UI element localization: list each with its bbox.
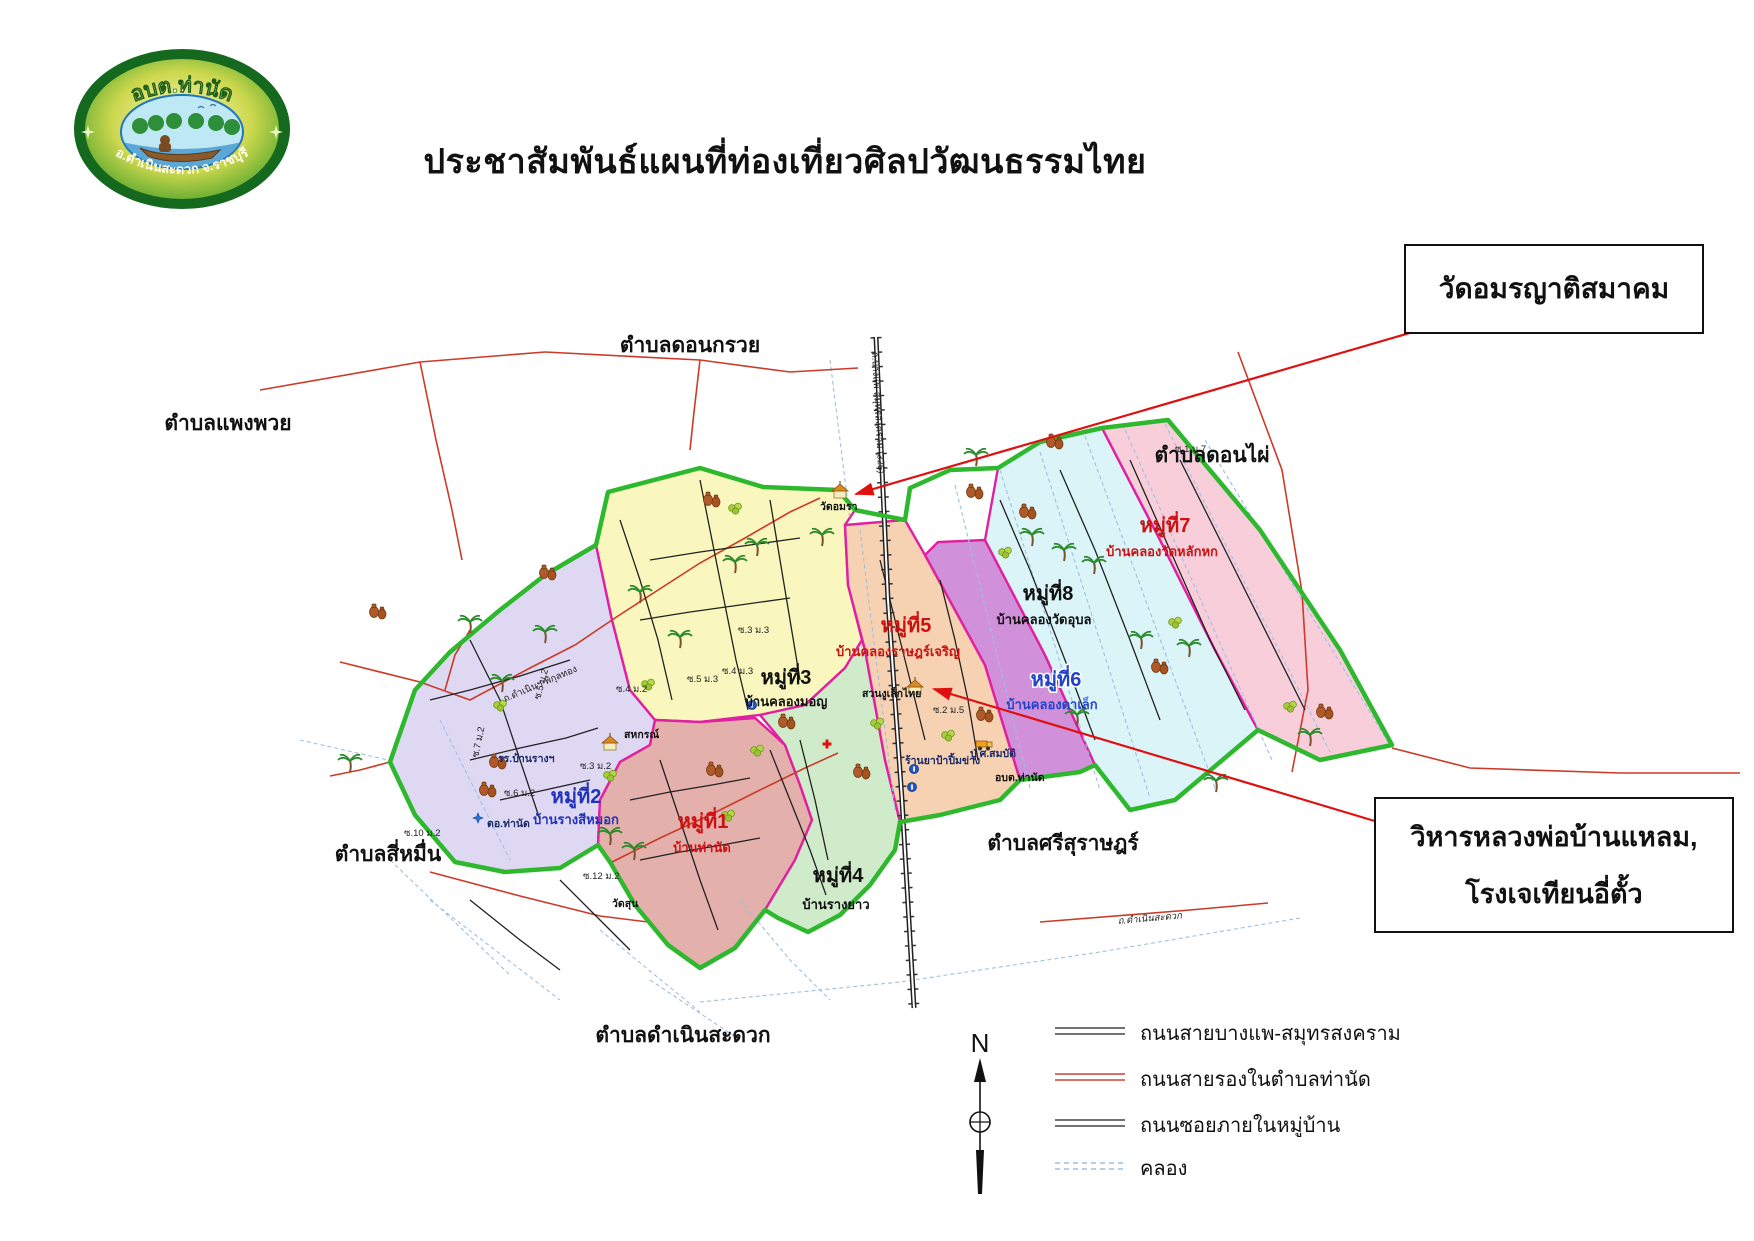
poi-school: รร.บ้านรางฯ xyxy=(498,752,555,765)
zone-4-name: บ้านรางยาว xyxy=(802,897,869,912)
zone-2-name: บ้านรางสีหมอก xyxy=(533,812,619,827)
zone-3-number: หมู่ที่3 xyxy=(761,662,812,691)
zone-3-name: บ้านคลองมอญ xyxy=(745,694,828,710)
palm-tree-icon xyxy=(338,755,362,772)
soi-label: ซ.1 ม.7 xyxy=(1175,444,1206,455)
zone-2-number: หมู่ที่2 xyxy=(551,781,602,810)
callout-wat-amornyat-text: วัดอมรญาติสมาคม xyxy=(1439,267,1669,311)
neighbor-don-kruai: ตำบลดอนกรวย xyxy=(620,334,760,357)
legend: ถนนสายบางแพ-สมุทรสงคราม ถนนสายรองในตำบลท… xyxy=(1055,1023,1401,1180)
zone-5-number: หมู่ที่5 xyxy=(881,610,932,639)
zone-4-number: หมู่ที่4 xyxy=(813,860,865,889)
neighbor-si-muen: ตำบลสี่หมื่น xyxy=(335,838,442,866)
compass-tail xyxy=(976,1150,984,1194)
poi-wat-amara: วัดอมรา xyxy=(820,501,858,513)
compass-arrowhead xyxy=(974,1058,986,1082)
neighbor-don-phai: ตำบลดอนไผ่ xyxy=(1154,442,1269,467)
soi-label: ซ.3 ม.2 xyxy=(580,761,611,772)
neighbor-damnoen-saduak: ตำบลดำเนินสะดวก xyxy=(595,1024,770,1047)
poi-snake-farm: สวนงูเล็กไทย xyxy=(862,686,921,701)
callout-wat-amornyat: วัดอมรญาติสมาคม xyxy=(1404,244,1704,334)
zone-6-name: บ้านคลองตาเล็ก xyxy=(1006,695,1097,712)
legend-label-highway: ถนนสายบางแพ-สมุทรสงคราม xyxy=(1140,1023,1401,1046)
neighbor-phaeng-phuai: ตำบลแพงพวย xyxy=(164,412,291,435)
soi-label: ซ.6 ม.2 xyxy=(504,788,535,799)
zone-7-name: บ้านคลองวัดหลักหก xyxy=(1106,544,1218,559)
legend-swatch-soi xyxy=(1055,1120,1125,1126)
legend-label-soi: ถนนซอยภายในหมู่บ้าน xyxy=(1140,1114,1341,1138)
callout-wihan-line-2: โรงเจเทียนอี่ตั้ว xyxy=(1465,872,1642,915)
legend-swatch-canal xyxy=(1055,1163,1125,1169)
zone-8-number: หมู่ที่8 xyxy=(1023,578,1074,607)
poi-cooperative: สหกรณ์ xyxy=(624,728,659,741)
callout-wihan-line-1: วิหารหลวงพ่อบ้านแหลม, xyxy=(1410,815,1697,858)
pottery-jar-icon xyxy=(967,484,984,499)
soi-label: ซ.3 ม.3 xyxy=(738,625,769,636)
soi-label: ซ.12 ม.2 xyxy=(583,871,619,882)
soi-label: ซ.5 ม.3 xyxy=(687,674,718,685)
soi-label: ซ.4 ม.2 xyxy=(616,684,647,695)
legend-swatch-highway xyxy=(1055,1028,1125,1034)
poi-wat-sun: วัดสุน xyxy=(612,898,639,911)
zone-1-number: หมู่ที่1 xyxy=(678,806,729,835)
zone-1-name: บ้านท่านัด xyxy=(673,840,731,855)
poi-pu-sombat: ปู่ ศ.สมบัติ xyxy=(970,748,1016,761)
soi-label: ซ.2 ม.5 xyxy=(933,705,964,716)
info-marker-icon xyxy=(908,783,917,792)
obt-tha-nat-logo: อบต.ท่านัด อ.ดำเนินสะดวก จ.ราชบุรี xyxy=(70,44,295,214)
zone-6-number: หมู่ที่6 xyxy=(1031,664,1082,693)
neighbor-si-surat: ตำบลศรีสุราษฎร์ xyxy=(987,831,1139,857)
soi-label: ซ.10 ม.2 xyxy=(404,828,440,839)
compass-north-label: N xyxy=(971,1028,990,1058)
zone-7-number: หมู่ที่7 xyxy=(1140,510,1191,539)
legend-label-secondary-road: ถนนสายรองในตำบลท่านัด xyxy=(1140,1068,1371,1091)
legend-label-canal: คลอง xyxy=(1140,1158,1187,1180)
poi-obt-tha-nat: อบต.ท่านัด xyxy=(995,772,1045,784)
temple-icon xyxy=(832,481,848,498)
road-label-325: ถ.บางแพ-สมุทรสงคราม (325) xyxy=(869,352,886,474)
soi-label: ซ.4 ม.3 xyxy=(722,666,753,677)
compass: N xyxy=(970,1028,990,1194)
map-page: หมู่ที่1 บ้านท่านัด หมู่ที่2 บ้านรางสีหม… xyxy=(0,0,1754,1241)
zone-8-name: บ้านคลองวัดอุบล xyxy=(996,612,1091,628)
poi-police-box: ตอ.ท่านัด xyxy=(487,818,530,830)
zone-5-name: บ้านคลองราษฎร์เจริญ xyxy=(836,644,960,660)
palm-tree-icon xyxy=(1204,775,1228,792)
legend-swatch-secondary-road xyxy=(1055,1074,1125,1080)
road-label-damnoen-saduak: ถ.ดำเนินสะดวก xyxy=(1117,910,1183,927)
callout-wihan-luangpho: วิหารหลวงพ่อบ้านแหลม, โรงเจเทียนอี่ตั้ว xyxy=(1374,797,1734,933)
pottery-jar-icon xyxy=(370,604,387,619)
poi-drugstore: ร้านยาป้าปิ้มข่าง xyxy=(905,752,980,767)
